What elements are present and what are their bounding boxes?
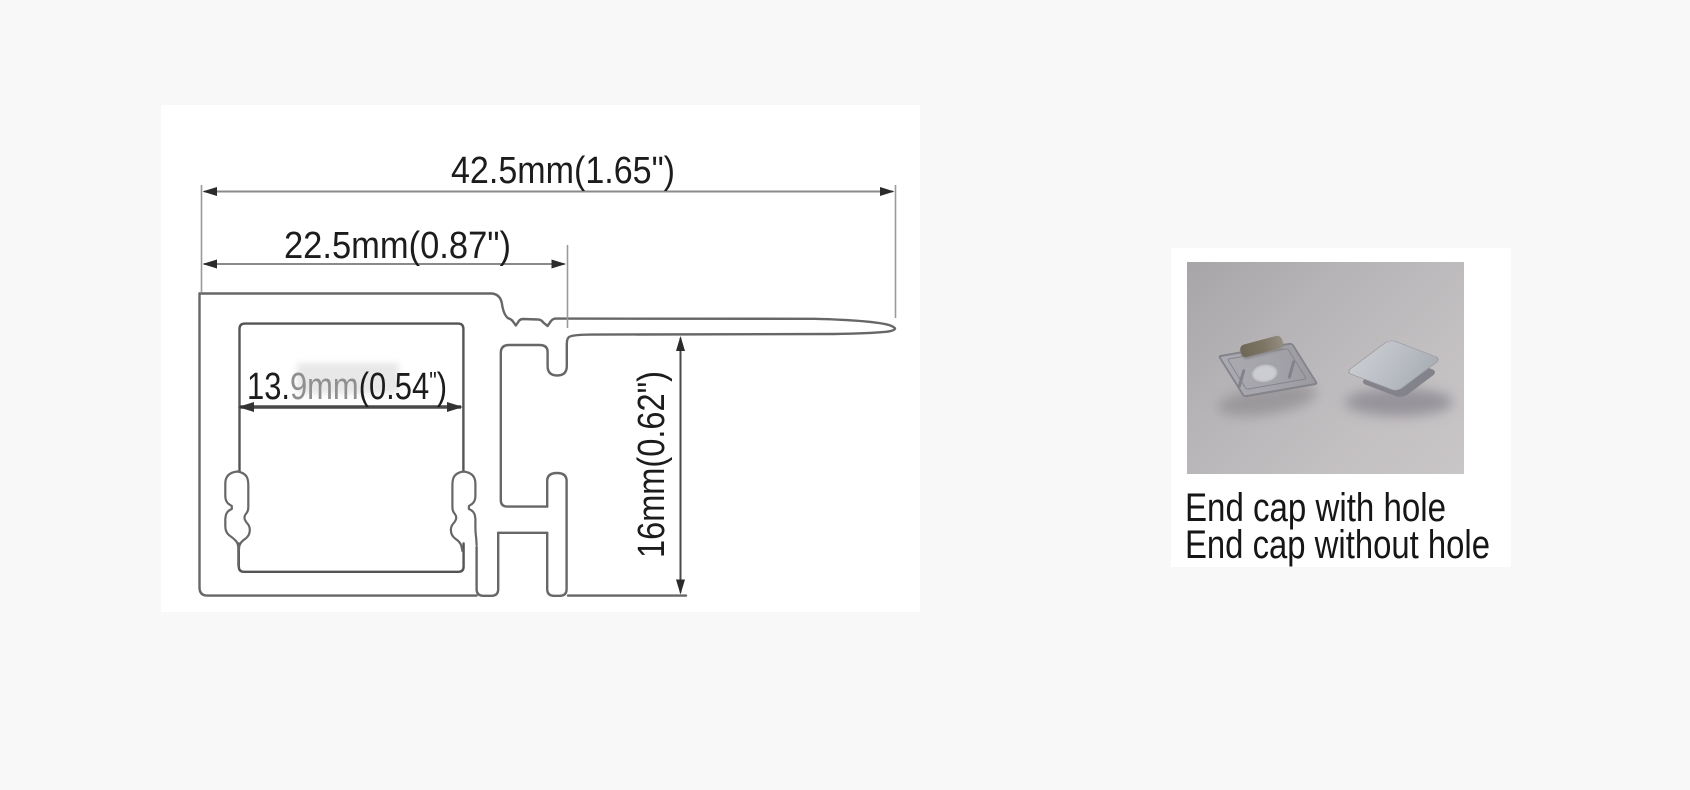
svg-text:16mm(0.62"): 16mm(0.62") — [631, 371, 673, 558]
svg-text:42.5mm(1.65"): 42.5mm(1.65") — [451, 150, 675, 192]
svg-text:13.9mm(0.54"): 13.9mm(0.54") — [247, 366, 447, 408]
svg-text:End cap without hole: End cap without hole — [1185, 523, 1490, 567]
svg-text:22.5mm(0.87"): 22.5mm(0.87") — [284, 225, 511, 267]
